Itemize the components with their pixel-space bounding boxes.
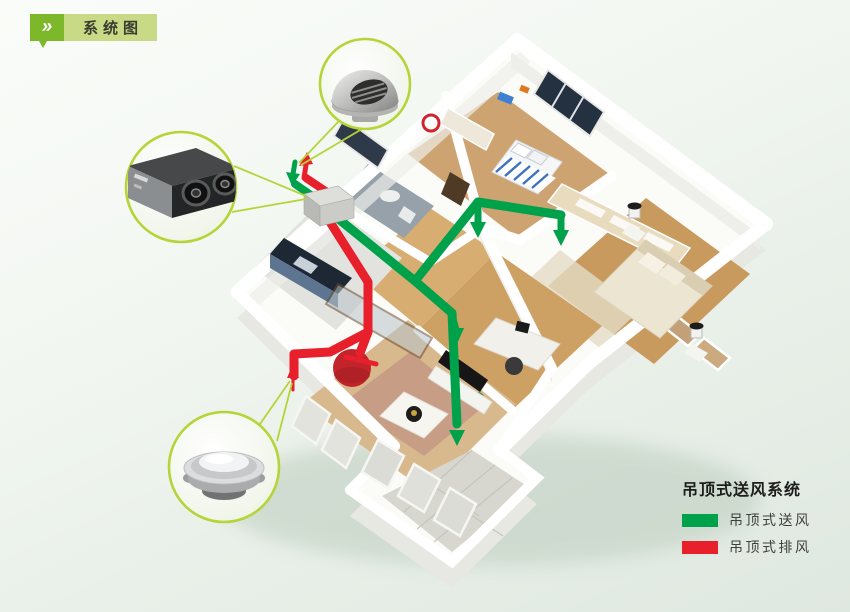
legend-item-supply: 吊顶式送风	[682, 513, 812, 527]
callout-hrv-unit	[126, 132, 306, 242]
legend-label-supply: 吊顶式送风	[729, 510, 812, 530]
supply-swatch	[682, 514, 718, 527]
legend-label-exhaust: 吊顶式排风	[729, 537, 812, 557]
page: » 系统图 吊顶式送风系统 吊顶式送风 吊顶式排风	[0, 0, 850, 612]
legend-title: 吊顶式送风系统	[682, 476, 812, 500]
double-chevron-icon: »	[30, 14, 64, 41]
red-floor-feature	[333, 349, 371, 387]
section-header: » 系统图	[30, 14, 157, 41]
exhaust-swatch	[682, 541, 718, 554]
legend-item-exhaust: 吊顶式排风	[682, 540, 812, 554]
legend: 吊顶式送风系统 吊顶式送风 吊顶式排风	[682, 476, 812, 554]
section-title: 系统图	[64, 14, 157, 41]
